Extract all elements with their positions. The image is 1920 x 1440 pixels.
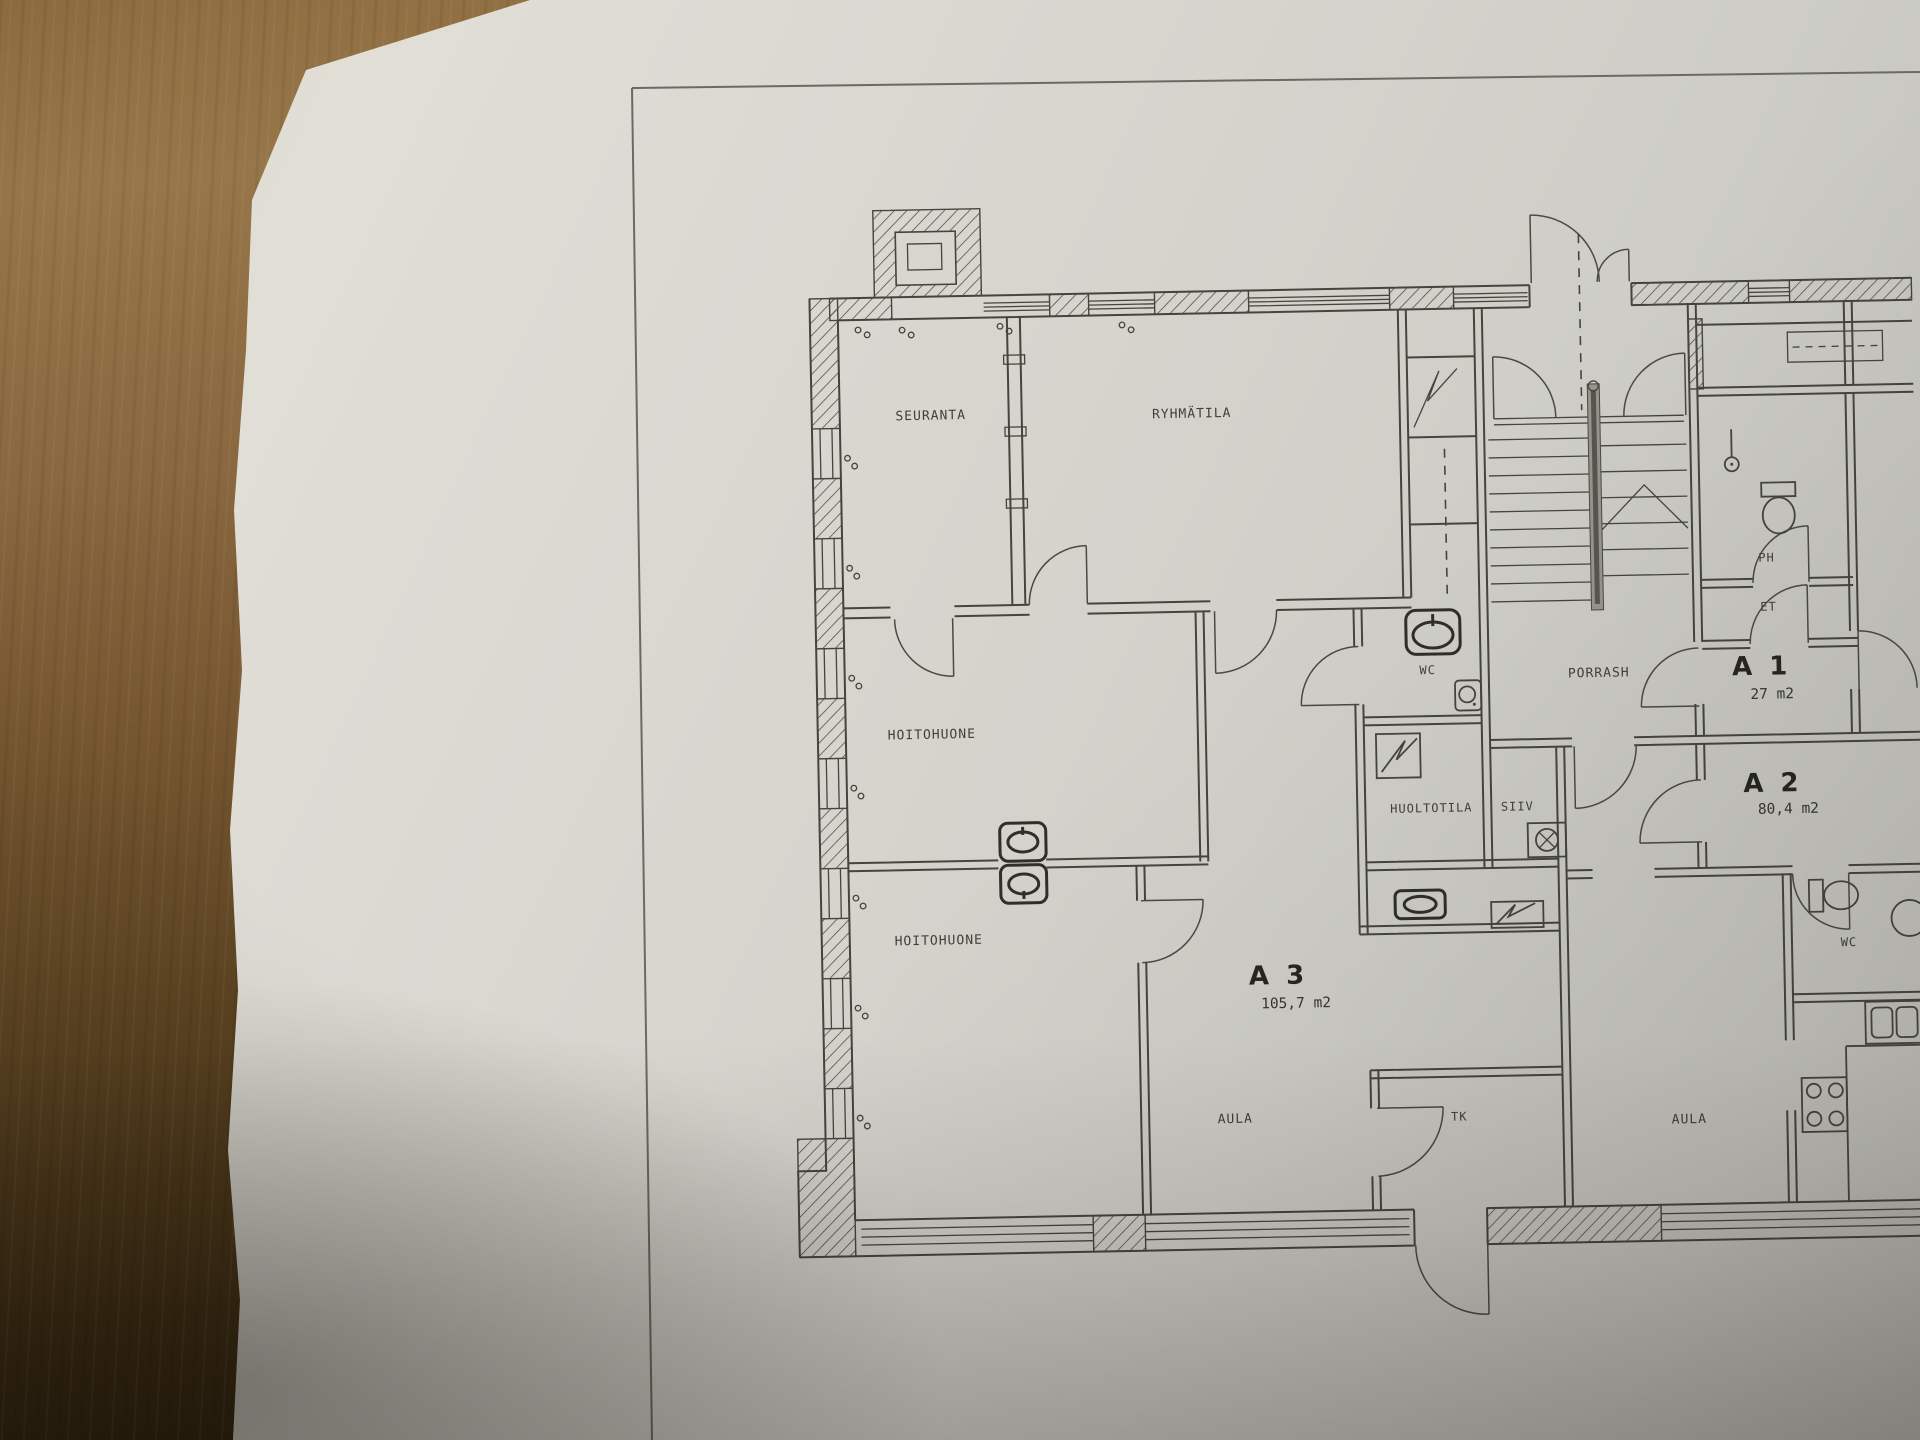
shower-icon — [1724, 429, 1739, 471]
toilet-icon — [1809, 879, 1859, 912]
stove-icon — [1802, 1077, 1848, 1132]
door-arc — [1028, 546, 1087, 605]
door-arc — [1749, 585, 1808, 644]
apartment-id-a2: A 2 — [1743, 768, 1803, 799]
room-label-hoitohuone-2: HOITOHUONE — [895, 933, 984, 950]
sink-icon — [1891, 900, 1920, 937]
floor-plan-drawing: SEURANTA RYHMÄTILA HOITOHUONE HOITOHUONE… — [0, 0, 1920, 1440]
room-label-wc-a2: WC — [1841, 935, 1858, 949]
apartment-area-a1: 27 m2 — [1750, 686, 1794, 703]
room-label-ph: PH — [1758, 550, 1775, 564]
room-label-siiv: SIIV — [1501, 799, 1534, 814]
door-arc — [1530, 214, 1599, 283]
room-label-porrash: PORRASH — [1568, 665, 1630, 681]
sink-icon — [1395, 890, 1446, 919]
kitchen-sink-icon — [1865, 1001, 1920, 1044]
room-label-wc-a3: WC — [1419, 663, 1436, 677]
door-arc — [1377, 1107, 1444, 1176]
door-arc — [1416, 1244, 1489, 1315]
room-label-aula-a3: AULA — [1217, 1112, 1253, 1128]
room-label-huoltotila: HUOLTOTILA — [1390, 800, 1473, 816]
door-arc — [1574, 745, 1637, 808]
door-arc — [1215, 610, 1278, 673]
chimney — [873, 209, 982, 298]
room-label-tk: TK — [1451, 1109, 1468, 1123]
door-arc — [1493, 356, 1556, 419]
room-label-hoitohuone-1: HOITOHUONE — [888, 727, 977, 744]
room-label-ryhmatila: RYHMÄTILA — [1152, 405, 1232, 423]
door-arc — [1597, 249, 1630, 282]
fixtures — [842, 306, 1920, 1220]
building-plan: SEURANTA RYHMÄTILA HOITOHUONE HOITOHUONE… — [780, 191, 1920, 1328]
door-arc — [1640, 648, 1699, 707]
door-arc — [1141, 900, 1204, 963]
electrical-panel-icon — [1376, 733, 1421, 778]
door-arc — [1623, 353, 1686, 416]
apartment-area-a2: 80,4 m2 — [1758, 801, 1819, 818]
apartment-id-a3: A 3 — [1249, 961, 1309, 992]
door-arc — [1300, 646, 1359, 705]
room-label-et: ET — [1760, 599, 1777, 613]
doors — [887, 208, 1920, 1325]
exterior-walls — [781, 278, 1920, 1258]
sink-icon — [1455, 680, 1482, 710]
kitchen-counter — [1846, 1045, 1920, 1202]
apartment-id-a1: A 1 — [1732, 651, 1792, 682]
door-arc — [895, 618, 954, 677]
toilet-icon — [1761, 482, 1796, 534]
apartment-area-a3: 105,7 m2 — [1261, 995, 1331, 1012]
room-label-aula-a2: AULA — [1672, 1112, 1708, 1128]
room-label-seuranta: SEURANTA — [895, 408, 966, 424]
door-arc — [1858, 630, 1917, 689]
sink-icon — [1000, 823, 1048, 904]
door-arc — [1639, 780, 1702, 843]
vent-marks — [842, 321, 1149, 1129]
room-labels: SEURANTA RYHMÄTILA HOITOHUONE HOITOHUONE… — [881, 391, 1860, 1142]
toilet-icon — [1406, 610, 1461, 655]
sink-icon — [1528, 823, 1567, 858]
interior-walls — [838, 300, 1920, 1220]
